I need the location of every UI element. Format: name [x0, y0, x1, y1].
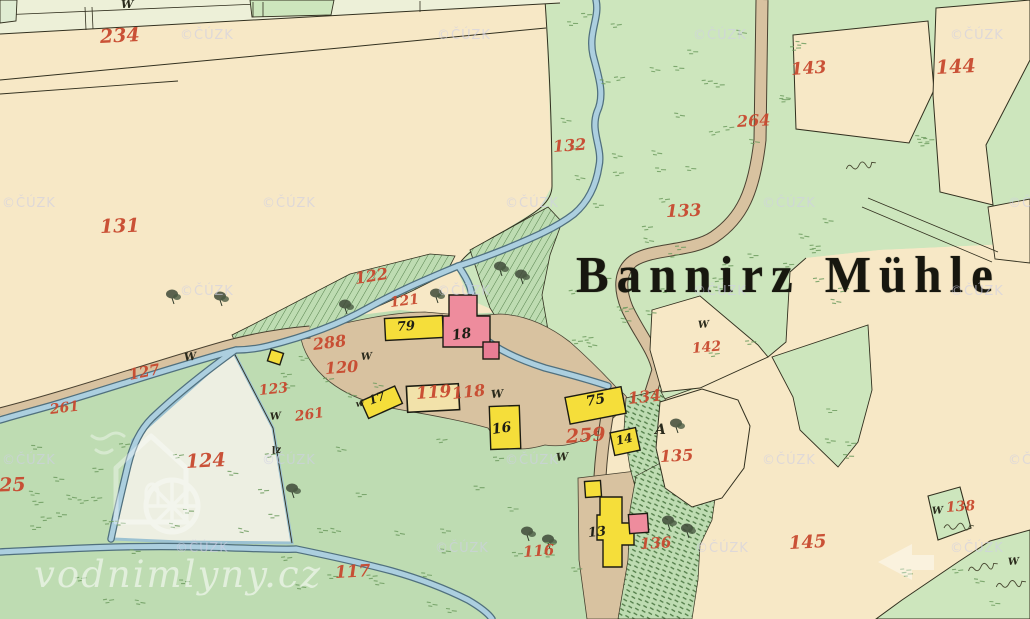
building-13-annex	[584, 480, 601, 497]
letter-label-W: W	[698, 320, 710, 331]
building-label-16: 16	[491, 420, 512, 437]
copyright-watermark: ©ČÚZK	[1008, 196, 1030, 211]
copyright-watermark: ©ČÚZK	[762, 196, 816, 211]
copyright-watermark: ©ČÚZK	[693, 284, 747, 299]
copyright-watermark: ©ČÚZK	[2, 453, 56, 468]
parcel-label-123: 123	[258, 381, 289, 398]
copyright-watermark: ©ČÚZK	[505, 196, 559, 211]
parcel-label-116: 116	[522, 543, 554, 560]
parcel-label-261: 261	[49, 399, 80, 416]
copyright-watermark: ©ČÚZK	[437, 28, 491, 43]
letter-label-W: W	[121, 0, 133, 10]
letter-label-W: W	[183, 351, 196, 363]
copyright-watermark: ©ČÚZK	[437, 284, 491, 299]
copyright-watermark: ©ČÚZK	[505, 453, 559, 468]
site-watermark: vodnimlyny.cz	[34, 553, 322, 596]
letter-label-W: W	[269, 412, 281, 423]
parcel-label-117: 117	[335, 563, 371, 582]
copyright-watermark: ©ČÚZK	[262, 453, 316, 468]
copyright-watermark: ©ČÚZK	[695, 541, 749, 556]
parcel-label-124: 124	[186, 451, 227, 472]
map-title: BannirzMühle	[576, 244, 1001, 304]
map-drawing	[0, 0, 1030, 619]
parcel-label-261: 261	[294, 406, 325, 424]
parcel-label-264: 264	[737, 112, 771, 130]
building-label-79: 79	[397, 320, 416, 334]
parcel-label-120: 120	[324, 359, 358, 377]
parcel-label-125: 125	[0, 476, 26, 496]
letter-label-W: W	[361, 352, 373, 363]
parcel-label-133: 133	[666, 203, 702, 221]
map-canvas[interactable]: BannirzMühle 234131132133143144264122121…	[0, 0, 1030, 619]
parcel-label-288: 288	[312, 333, 347, 353]
letter-label-W: W	[932, 506, 944, 517]
parcel-label-143: 143	[790, 60, 827, 79]
parcel-label-134: 134	[627, 388, 662, 407]
parcel-label-234: 234	[100, 26, 141, 47]
parcel-label-132: 132	[552, 137, 586, 155]
copyright-watermark: ©ČÚZK	[950, 28, 1004, 43]
parcel-label-135: 135	[660, 447, 694, 465]
parcel-label-138: 138	[946, 499, 976, 515]
copyright-watermark: ©ČÚZK	[762, 453, 816, 468]
letter-label-A: A	[655, 423, 666, 437]
copyright-watermark: ©ČÚZK	[180, 284, 234, 299]
letter-label-W: W	[491, 388, 504, 400]
building-label-14: 14	[615, 432, 634, 447]
parcel-label-144: 144	[936, 57, 977, 78]
building-label-75: 75	[585, 392, 607, 409]
copyright-watermark: ©ČÚZK	[180, 28, 234, 43]
copyright-watermark: ©ČÚZK	[950, 284, 1004, 299]
building-18-annex	[483, 342, 499, 359]
map-title-word1: Bannirz	[576, 245, 801, 303]
letter-label-W: W	[1008, 557, 1020, 568]
parcel-label-119: 119	[415, 384, 452, 403]
building-136	[628, 513, 648, 533]
parcel-label-142: 142	[691, 339, 721, 355]
parcel-label-145: 145	[789, 533, 827, 553]
copyright-watermark: ©ČÚZK	[2, 196, 56, 211]
building-label-18: 18	[451, 326, 472, 343]
parcel-label-259: 259	[565, 425, 606, 447]
copyright-watermark: ©ČÚZK	[693, 28, 747, 43]
copyright-watermark: ©ČÚZK	[435, 541, 489, 556]
parcel-label-131: 131	[100, 217, 140, 237]
parcel-143	[793, 21, 934, 143]
copyright-watermark: ©ČÚZK	[950, 541, 1004, 556]
parcel-label-121: 121	[389, 292, 420, 309]
building-label-13: 13	[587, 525, 606, 540]
parcel-label-136: 136	[640, 535, 672, 552]
copyright-watermark: ©ČÚZK	[262, 196, 316, 211]
parcel-label-118: 118	[451, 383, 486, 402]
copyright-watermark: ©ČÚZK	[1008, 453, 1030, 468]
letter-label-w: w	[355, 400, 364, 410]
